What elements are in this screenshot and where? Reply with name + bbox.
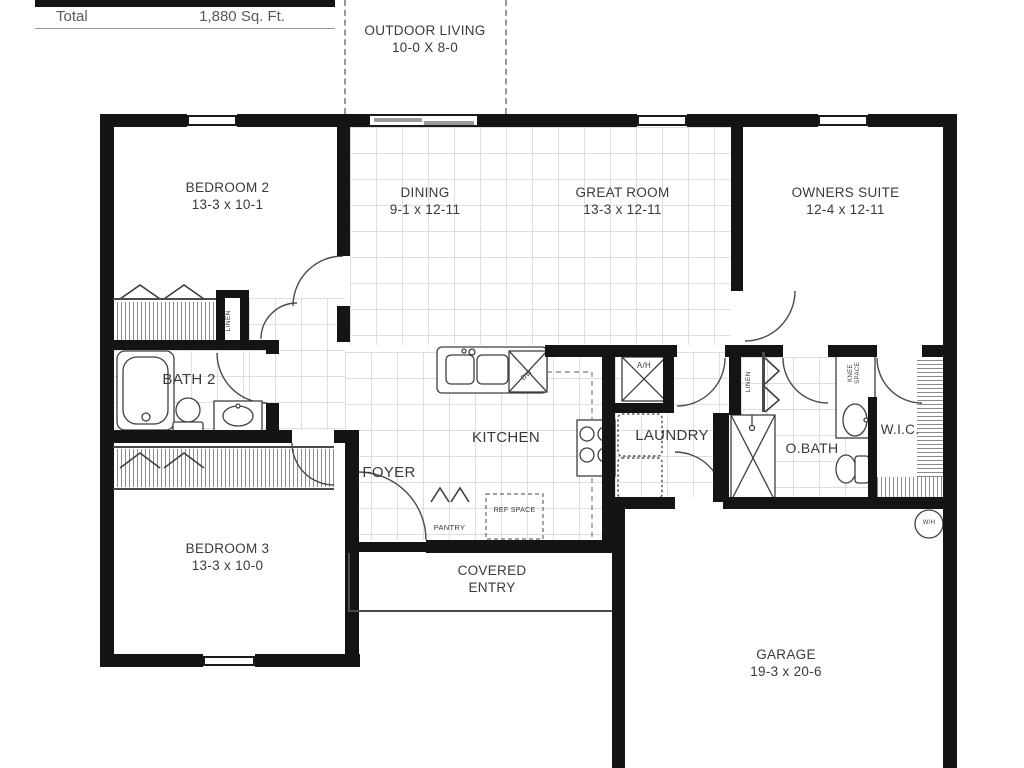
burner-icon [580,448,594,462]
knee-space-label: KNEE SPACE [848,357,862,389]
water-heater-label: W/H [915,520,943,526]
wall-bath2-right [266,340,279,354]
kitchen-label: KITCHEN [440,428,572,447]
kitchen-sink-right-icon [477,355,508,384]
kitchen-faucet-icon [469,349,475,355]
bedroom3-door-arc [292,443,334,485]
wall-left [100,114,114,667]
sliding-door-panel [374,118,422,122]
greatroom-window [637,115,687,126]
wall-bath2-right [266,403,279,430]
wall-bath2-bottom [334,430,359,443]
linen2-bifold-icon [765,387,779,412]
bedroom3-window [203,656,255,666]
sliding-glass-door [370,114,477,127]
wic-door-arc [877,358,922,403]
owners-suite-label: OWNERS SUITE [757,184,934,201]
foyer-label: FOYER [349,463,429,482]
burner-icon [580,427,594,441]
wall-bedroom3-bottom [100,654,203,667]
bath2-sink-icon [223,406,253,426]
wall-right [943,114,957,768]
bedroom2-closet-bifold-icon [120,285,160,299]
owners-suite-window [818,115,868,126]
bedroom3-closet-front [113,446,334,448]
wall-front [426,540,615,553]
greatroom-label: GREAT ROOM [544,184,701,201]
laundry-label: LAUNDRY [613,426,731,445]
wall-greatroom-owners [731,127,743,291]
linen2-bifold-icon [765,358,779,384]
wall-garage-top [612,497,675,509]
hall-linen-door-arc [261,303,297,339]
kitchen-faucet-icon [462,349,466,353]
dining-dims: 9-1 x 12-11 [349,201,501,218]
wall-top [477,114,637,127]
bedroom3-closet-front [113,488,334,490]
linen2-label: LINEN [745,371,752,392]
owners-bath-label: O.BATH [768,440,856,458]
bathtub-drain-icon [142,413,150,421]
owners-suite-door-arc [745,291,795,341]
wall-top [237,114,370,127]
wall-ah-right [663,352,674,413]
kitchen-sink-left-icon [446,355,474,384]
linen2-closet: LINEN [735,362,763,402]
wall-garage-left [612,509,625,768]
ref-space-dashed-box [486,494,543,539]
pantry-label: PANTRY [429,523,470,532]
knee-space: KNEE SPACE [836,352,874,394]
linen1-label: LINEN [225,310,232,331]
covered-entry-edge-bottom [348,610,612,612]
floor-plan: Total 1,880 Sq. Ft. OUTDOOR LIVING 10-0 … [0,0,1024,768]
wall-owners-bottom [922,345,943,357]
garage-label: GARAGE [700,646,872,663]
owners-toilet-bowl-icon [836,455,856,483]
bedroom2-closet-bifold-icon [164,285,204,299]
owners-bath-door-arc [783,358,828,403]
air-handler-label: A/H [624,361,664,370]
bedroom3-closet-bifold-icon [120,453,160,468]
dryer-icon [618,458,662,498]
wall-bedroom2-right [337,306,350,342]
wic-label: W.I.C. [863,421,937,438]
toilet-bowl-icon [176,398,200,422]
bath2-faucet-icon [236,404,240,408]
wall-ah-bottom [612,403,668,413]
bedroom3-closet-bifold-icon [164,453,204,468]
wall-bath2-bottom [113,430,292,443]
bedroom2-window [187,115,237,126]
bedroom2-closet-front [113,298,216,300]
bedroom2-door-arc [293,256,343,306]
pantry-bifold-icon [431,488,449,502]
bedroom2-label: BEDROOM 2 [140,179,315,196]
covered-entry-label: COVERED ENTRY [442,562,542,597]
bedroom2-dims: 13-3 x 10-1 [140,196,315,213]
bedroom3-dims: 13-3 x 10-0 [140,557,315,574]
covered-entry-edge-left [348,553,350,612]
wall-top [687,114,818,127]
greatroom-dims: 13-3 x 12-11 [544,201,701,218]
owners-toilet-tank-icon [855,456,869,483]
dining-label: DINING [349,184,501,201]
wall-kitchen-right [602,352,615,540]
front-door-arc [358,472,426,540]
sliding-door-panel [424,121,474,125]
linen1-closet: LINEN [210,302,248,340]
pantry-bifold-icon [451,488,469,502]
bath2-label: BATH 2 [148,370,230,389]
front-door-sill [356,542,428,552]
wall-garage-top [723,497,957,509]
garage-dims: 19-3 x 20-6 [700,663,872,680]
hall-corridor-door-arc [677,358,725,406]
ref-space-label: REF SPACE [488,507,541,514]
owners-suite-dims: 12-4 x 12-11 [757,201,934,218]
bedroom3-label: BEDROOM 3 [140,540,315,557]
wall-obath-wic [868,397,877,497]
